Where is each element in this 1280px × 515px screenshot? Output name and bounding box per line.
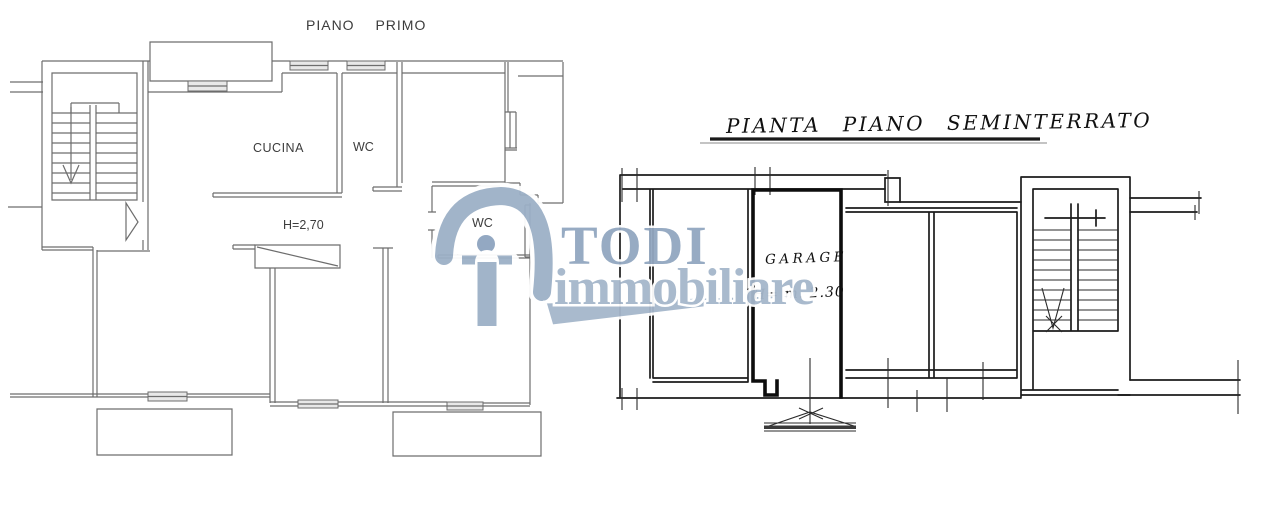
right-room-walls (1118, 198, 1240, 395)
wall-stubs-left (8, 82, 43, 207)
floorplan-page: PIANO PRIMO CUCINA WC H=2,70 WC PIANTA P… (0, 0, 1280, 515)
floorplan-canvas: PIANO PRIMO CUCINA WC H=2,70 WC PIANTA P… (0, 0, 1280, 515)
first-floor-title: PIANO PRIMO (306, 17, 426, 33)
watermark-brand-suffix: immobiliare (554, 259, 814, 316)
stair-down-arrow-icon (63, 107, 79, 183)
balcony-bottom-left (97, 409, 232, 455)
watermark-logo: TODI immobiliare (444, 196, 820, 326)
balcony-top (150, 42, 272, 81)
room-divider-walls (93, 247, 388, 403)
kitchen-label: CUCINA (253, 141, 304, 155)
closet-icon (255, 245, 340, 268)
ceiling-height-label: H=2,70 (283, 218, 324, 232)
balcony-bottom-right (393, 412, 541, 456)
right-shaft-walls (505, 62, 563, 203)
staircase-basement (1021, 177, 1130, 397)
wc-upper-label: WC (353, 140, 374, 154)
door-swing-icon (126, 203, 138, 240)
wc-lower-label: WC (472, 216, 493, 230)
staircase-first-floor (52, 73, 137, 200)
basement-title: PIANTA PIANO SEMINTERRATO (725, 108, 1153, 138)
pillar (885, 178, 900, 202)
lamppost-icon (444, 196, 544, 326)
